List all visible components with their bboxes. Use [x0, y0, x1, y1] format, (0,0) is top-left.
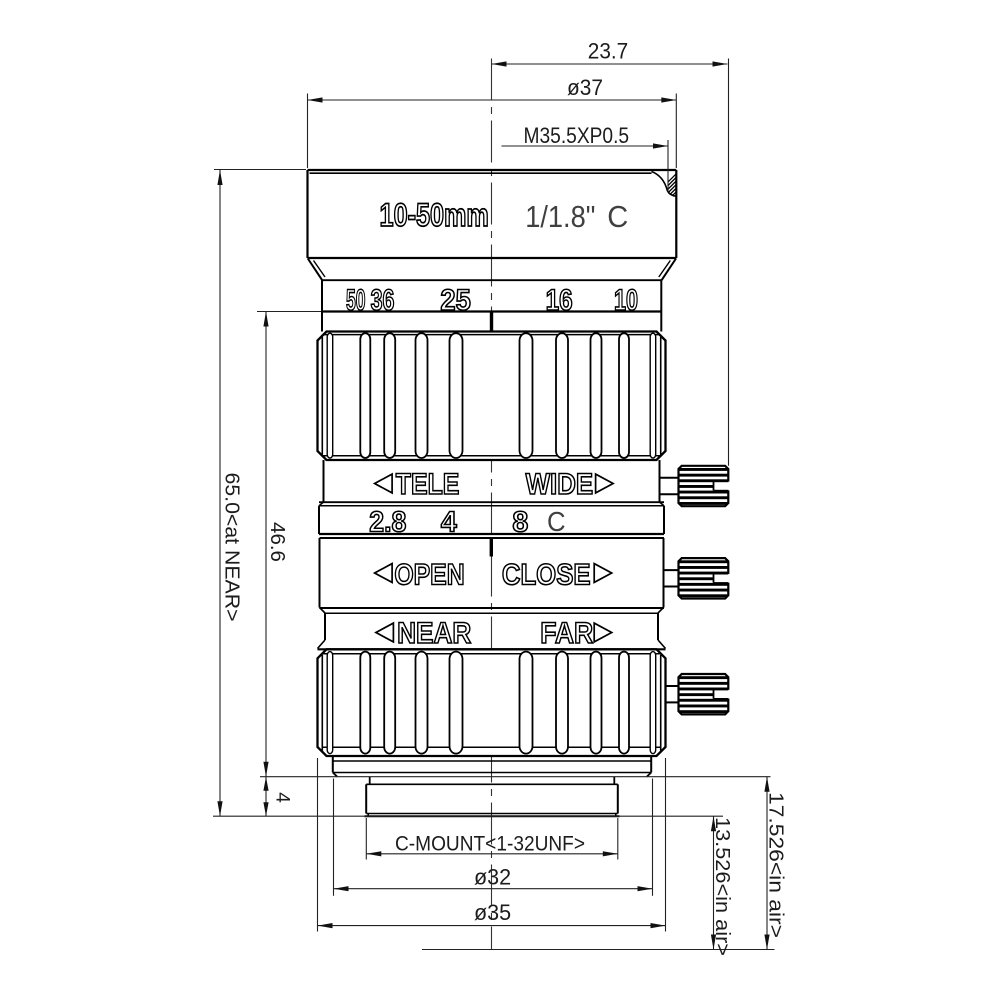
svg-text:WIDE: WIDE	[526, 468, 594, 501]
svg-text:50: 50	[346, 284, 366, 317]
svg-text:65.0<at NEAR>: 65.0<at NEAR>	[221, 473, 244, 622]
svg-text:13.526<in air>: 13.526<in air>	[711, 817, 734, 956]
svg-text:4: 4	[272, 792, 294, 803]
svg-text:10: 10	[614, 284, 638, 317]
svg-text:FAR: FAR	[540, 617, 593, 650]
svg-text:NEAR: NEAR	[397, 617, 471, 650]
svg-text:10-50mm: 10-50mm	[380, 197, 489, 233]
svg-text:25: 25	[440, 284, 470, 317]
svg-text:4: 4	[441, 506, 457, 538]
svg-text:17.526<in air>: 17.526<in air>	[765, 792, 788, 938]
svg-text:M35.5XP0.5: M35.5XP0.5	[524, 123, 630, 148]
svg-text:C: C	[547, 506, 566, 537]
svg-text:TELE: TELE	[396, 468, 460, 501]
svg-text:16: 16	[546, 284, 573, 317]
svg-text:OPEN: OPEN	[394, 558, 464, 591]
svg-text:36: 36	[371, 284, 395, 317]
svg-text:8: 8	[512, 506, 528, 538]
svg-text:C-MOUNT<1-32UNF>: C-MOUNT<1-32UNF>	[395, 833, 585, 856]
svg-text:46.6: 46.6	[266, 522, 289, 562]
svg-text:CLOSE: CLOSE	[502, 558, 591, 591]
svg-text:ø32: ø32	[474, 864, 511, 889]
svg-text:C: C	[607, 199, 628, 234]
svg-text:ø35: ø35	[474, 900, 511, 925]
svg-text:23.7: 23.7	[588, 38, 629, 63]
svg-text:1/1.8": 1/1.8"	[525, 199, 595, 234]
svg-text:2.8: 2.8	[369, 506, 406, 538]
svg-text:ø37: ø37	[567, 75, 603, 100]
